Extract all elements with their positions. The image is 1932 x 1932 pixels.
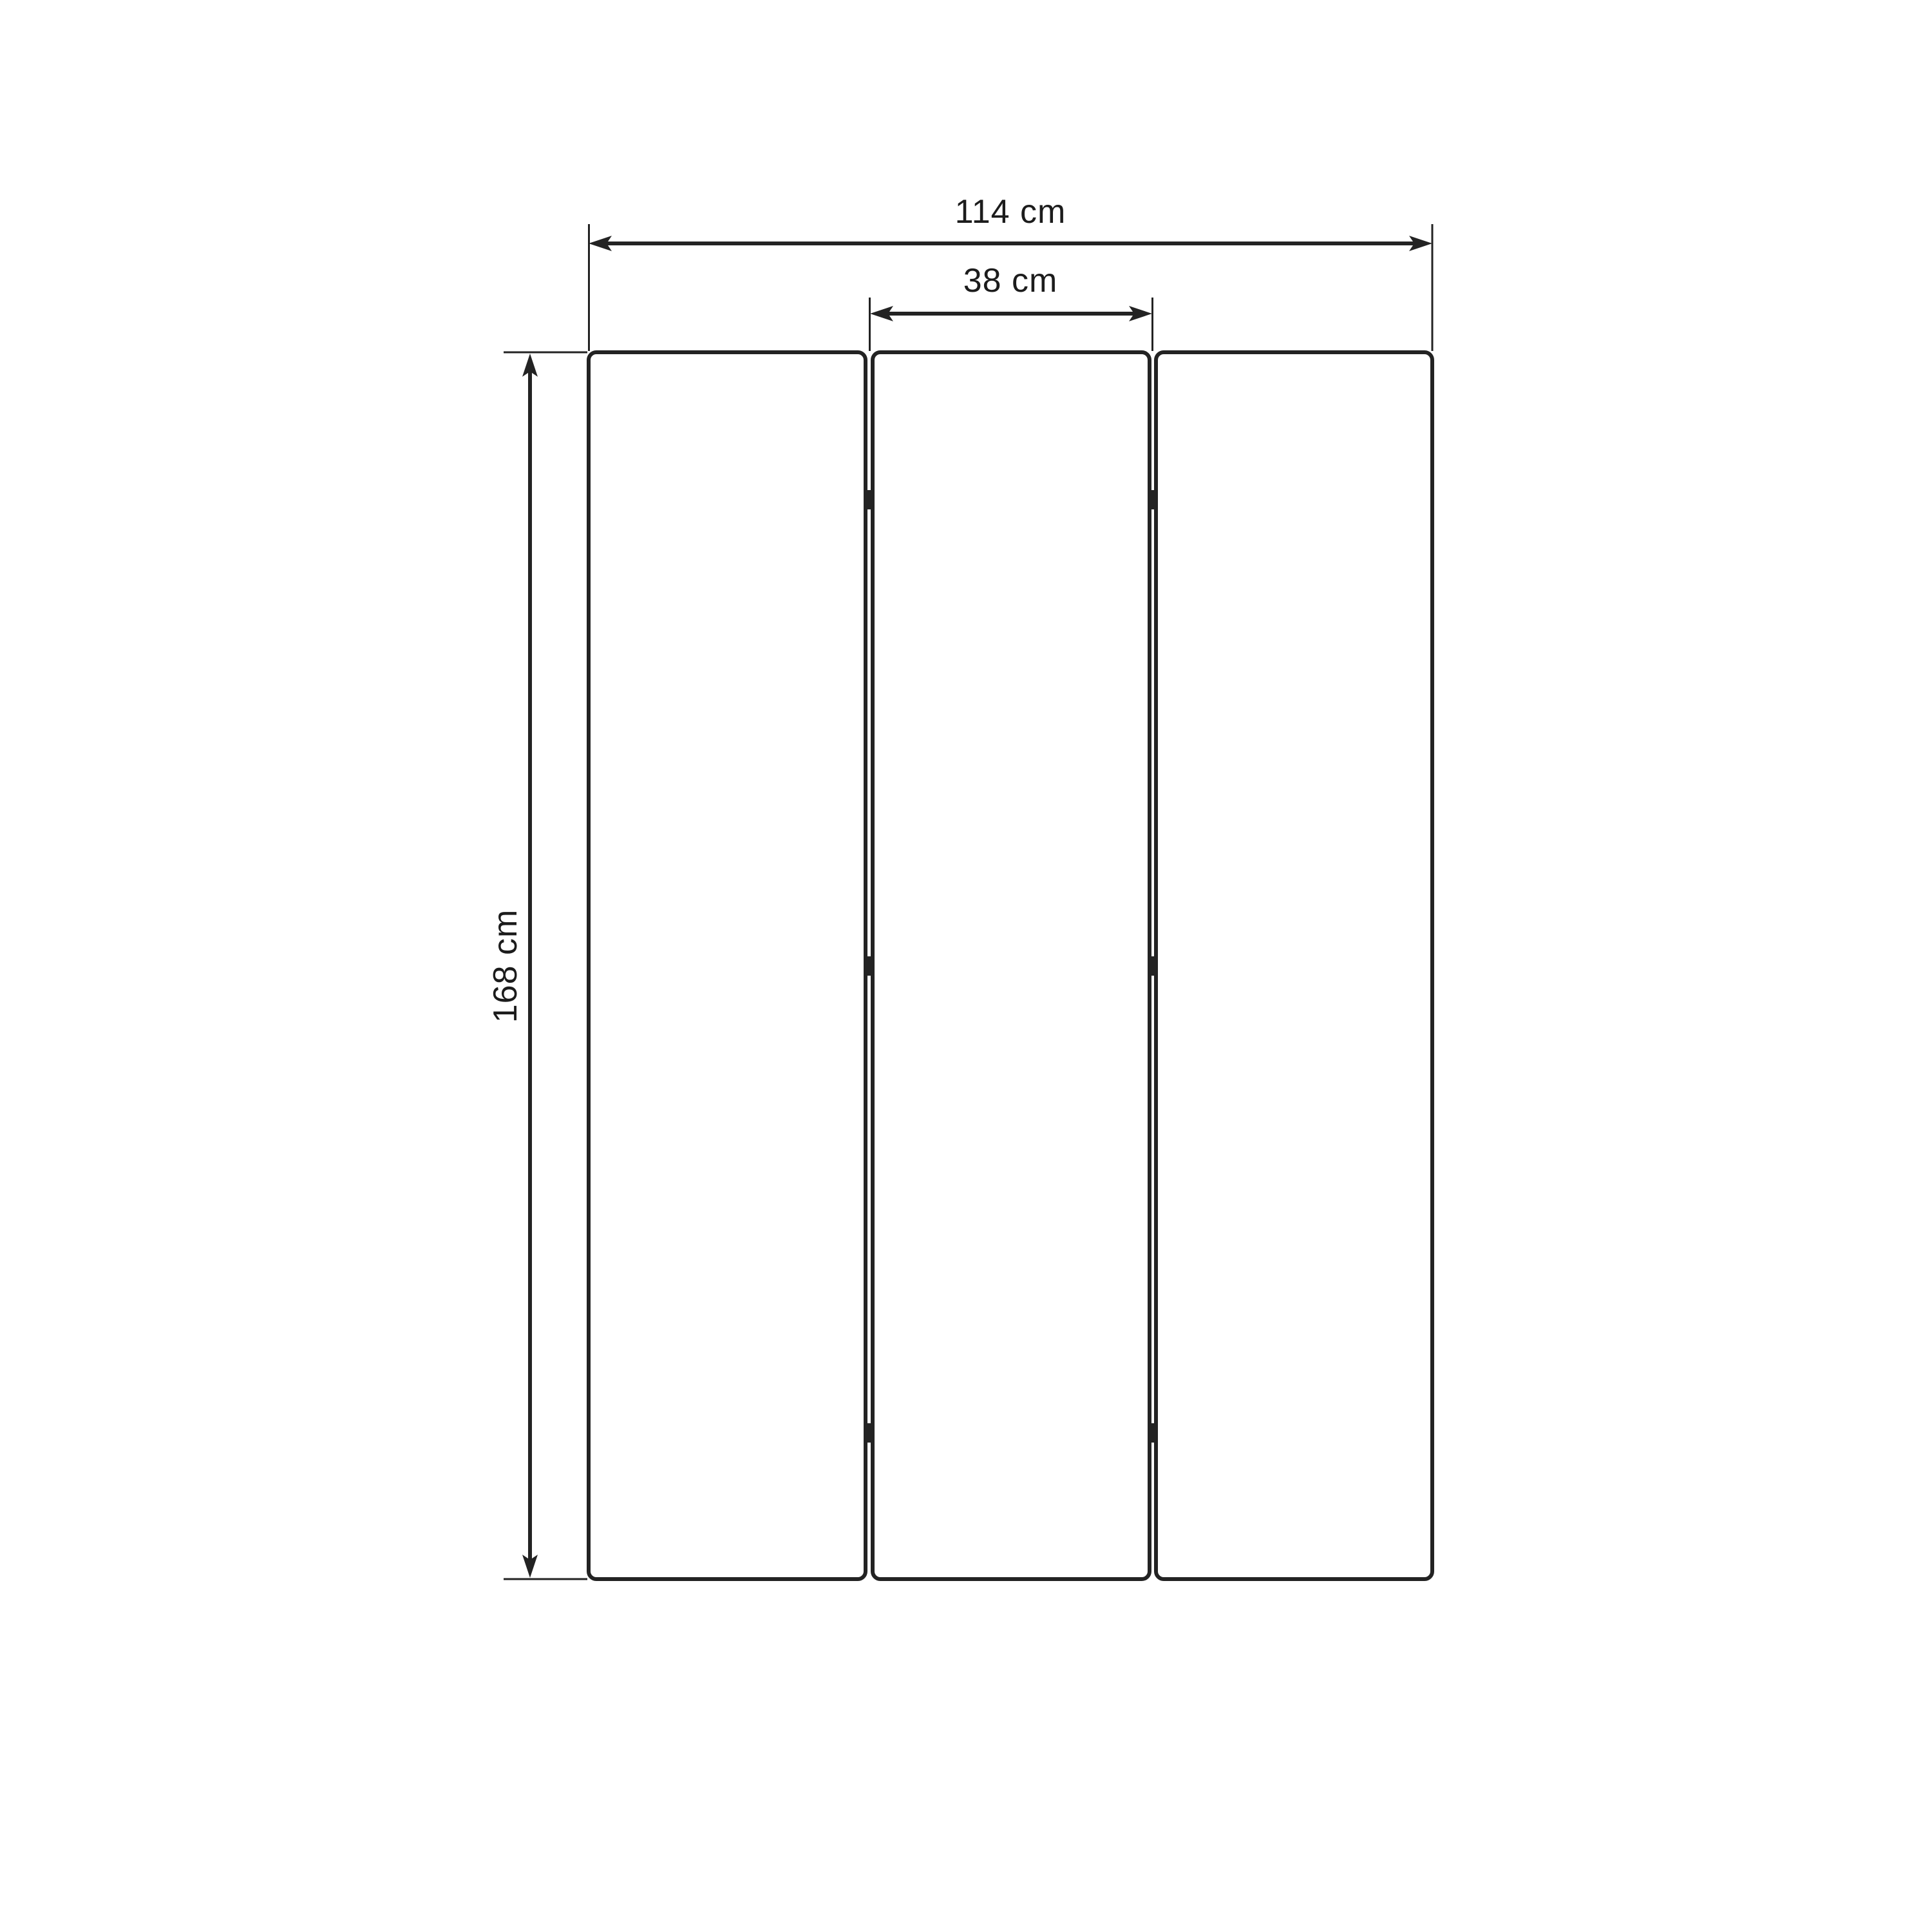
panel-left: [589, 352, 866, 1579]
hinge-right-gap-bottom: [1148, 1423, 1158, 1443]
dimension-label-total-width: 114 cm: [955, 193, 1066, 231]
dimension-label-height: 168 cm: [487, 909, 524, 1023]
folding-screen-technical-drawing: 114 cm 38 cm 168 cm: [0, 0, 1932, 1932]
drawing-canvas: 114 cm 38 cm 168 cm: [0, 0, 1932, 1932]
panel-right: [1156, 352, 1432, 1579]
hinge-left-gap-middle: [864, 956, 874, 976]
dimension-label-panel-width: 38 cm: [963, 262, 1058, 299]
dimension-panel-width: 38 cm: [870, 262, 1153, 351]
panels-group: [589, 352, 1432, 1579]
hinge-right-gap-middle: [1148, 956, 1158, 976]
hinge-right-gap-top: [1148, 490, 1158, 509]
panel-middle: [873, 352, 1150, 1579]
hinge-left-gap-top: [864, 490, 874, 509]
hinge-left-gap-bottom: [864, 1423, 874, 1443]
dimension-height: 168 cm: [487, 352, 587, 1579]
